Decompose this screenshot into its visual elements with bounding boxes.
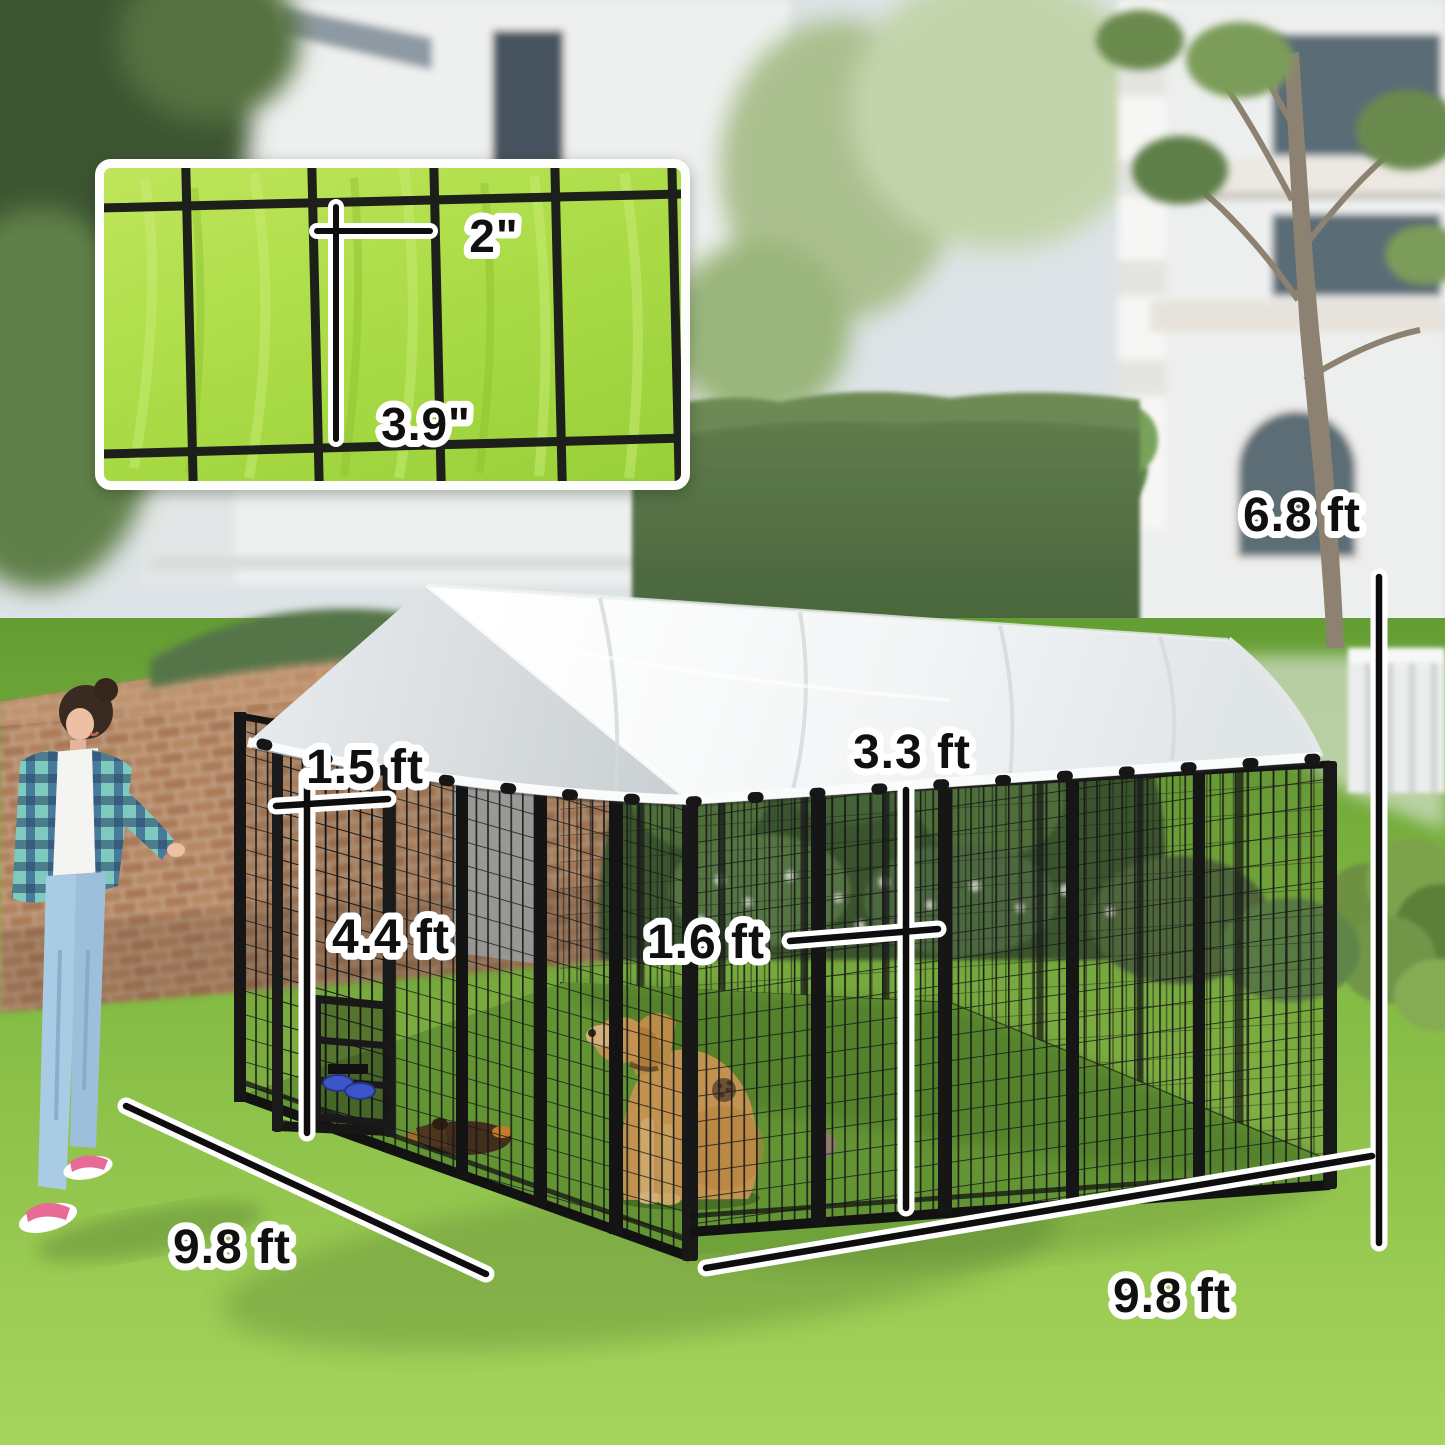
dim-label-panel-width: 3.3 ft xyxy=(853,726,971,779)
dimension-line-front-width xyxy=(706,1156,1372,1268)
dim-label-overall-height: 6.8 ft xyxy=(1243,489,1361,542)
dim-label-gap-above-door: 1.5 ft xyxy=(306,741,424,794)
mesh-detail-inset: 2" 3.9" xyxy=(95,159,690,490)
dim-label-half-panel: 1.6 ft xyxy=(647,916,765,969)
dim-label-mesh-width: 2" xyxy=(469,210,518,262)
product-image: 1.5 ft 4.4 ft 1.6 ft 3.3 ft 6.8 ft 9.8 f… xyxy=(0,0,1445,1445)
dim-label-mesh-height: 3.9" xyxy=(381,398,471,450)
dim-label-front-width: 9.8 ft xyxy=(1113,1270,1231,1323)
dim-label-door-height: 4.4 ft xyxy=(332,911,450,964)
dim-label-depth: 9.8 ft xyxy=(173,1221,291,1274)
mesh-detail-graphic: 2" 3.9" xyxy=(104,168,681,481)
